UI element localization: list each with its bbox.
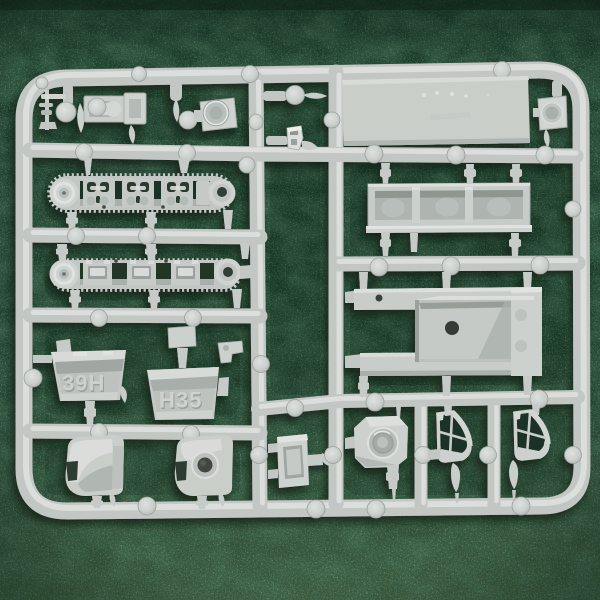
svg-text:H35: H35 <box>159 388 202 413</box>
svg-text:39H: 39H <box>62 371 105 396</box>
